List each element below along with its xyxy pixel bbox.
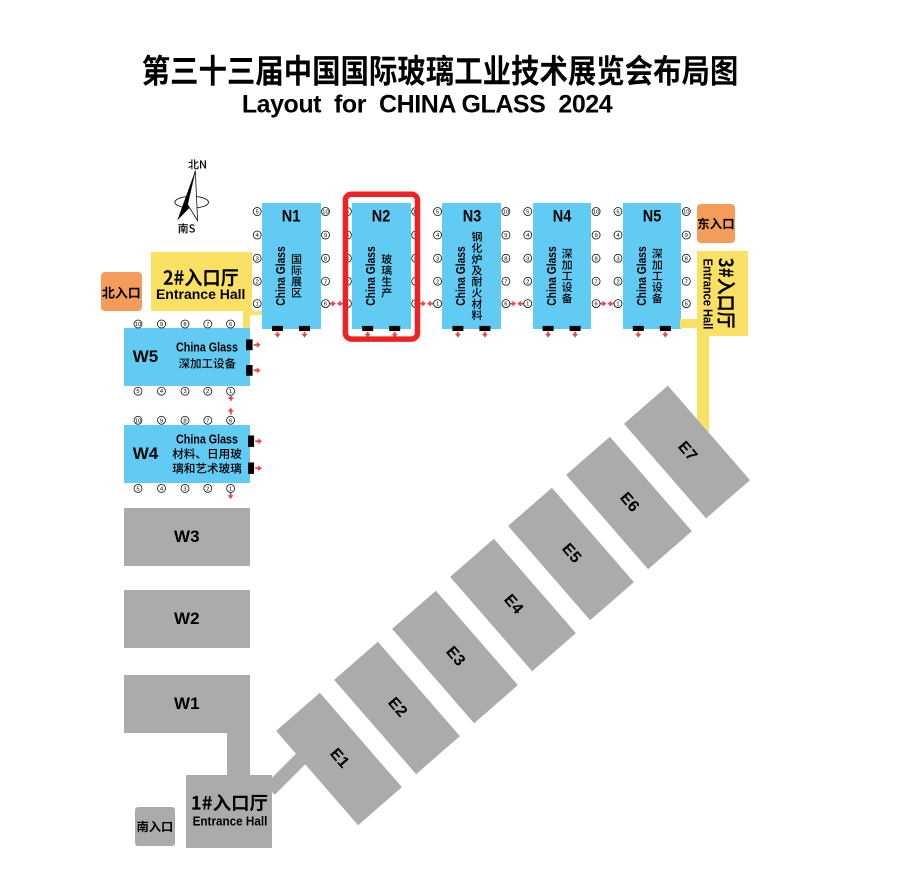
svg-text:1: 1: [436, 302, 439, 308]
svg-text:7: 7: [594, 279, 597, 285]
svg-text:6: 6: [324, 302, 327, 308]
svg-text:2: 2: [256, 279, 259, 285]
svg-text:5: 5: [256, 210, 259, 216]
svg-text:6: 6: [414, 302, 417, 308]
svg-text:3: 3: [256, 256, 259, 262]
svg-text:6: 6: [594, 302, 597, 308]
svg-text:4: 4: [256, 233, 260, 239]
svg-text:8: 8: [685, 256, 688, 262]
svg-text:9: 9: [414, 233, 417, 239]
svg-text:5: 5: [136, 486, 139, 492]
svg-text:3: 3: [346, 256, 349, 262]
svg-text:4: 4: [616, 233, 620, 239]
svg-text:9: 9: [504, 233, 507, 239]
svg-text:3: 3: [183, 486, 186, 492]
svg-text:4: 4: [160, 486, 164, 492]
svg-text:9: 9: [685, 233, 688, 239]
svg-text:9: 9: [160, 418, 163, 424]
svg-text:10: 10: [593, 210, 599, 216]
svg-text:10: 10: [683, 210, 689, 216]
svg-text:8: 8: [504, 256, 507, 262]
svg-text:2: 2: [346, 279, 349, 285]
svg-text:1: 1: [256, 302, 259, 308]
svg-text:1: 1: [229, 486, 232, 492]
svg-text:3: 3: [616, 256, 619, 262]
svg-text:9: 9: [324, 233, 327, 239]
svg-text:7: 7: [324, 279, 327, 285]
svg-text:3: 3: [436, 256, 439, 262]
svg-text:1: 1: [616, 302, 619, 308]
svg-text:8: 8: [183, 418, 186, 424]
svg-text:10: 10: [135, 418, 141, 424]
svg-text:5: 5: [436, 210, 439, 216]
svg-text:10: 10: [322, 210, 328, 216]
svg-text:1: 1: [229, 389, 232, 395]
svg-text:8: 8: [594, 256, 597, 262]
svg-text:7: 7: [414, 279, 417, 285]
svg-text:8: 8: [414, 256, 417, 262]
svg-text:3: 3: [526, 256, 529, 262]
svg-text:2: 2: [526, 279, 529, 285]
svg-text:4: 4: [160, 389, 164, 395]
svg-text:10: 10: [503, 210, 509, 216]
svg-text:6: 6: [685, 302, 688, 308]
svg-text:6: 6: [229, 418, 232, 424]
svg-text:7: 7: [685, 279, 688, 285]
svg-text:4: 4: [436, 233, 440, 239]
svg-text:5: 5: [526, 210, 529, 216]
svg-text:4: 4: [346, 233, 350, 239]
svg-text:2: 2: [206, 486, 209, 492]
svg-text:5: 5: [616, 210, 619, 216]
svg-text:4: 4: [526, 233, 530, 239]
svg-text:5: 5: [136, 389, 139, 395]
svg-text:3: 3: [183, 389, 186, 395]
svg-text:7: 7: [206, 418, 209, 424]
svg-text:7: 7: [504, 279, 507, 285]
svg-text:1: 1: [526, 302, 529, 308]
svg-text:5: 5: [346, 210, 349, 216]
svg-text:2: 2: [616, 279, 619, 285]
svg-text:2: 2: [206, 389, 209, 395]
svg-text:10: 10: [412, 210, 418, 216]
svg-text:6: 6: [504, 302, 507, 308]
svg-text:1: 1: [346, 302, 349, 308]
svg-text:9: 9: [594, 233, 597, 239]
svg-text:2: 2: [436, 279, 439, 285]
svg-text:8: 8: [324, 256, 327, 262]
